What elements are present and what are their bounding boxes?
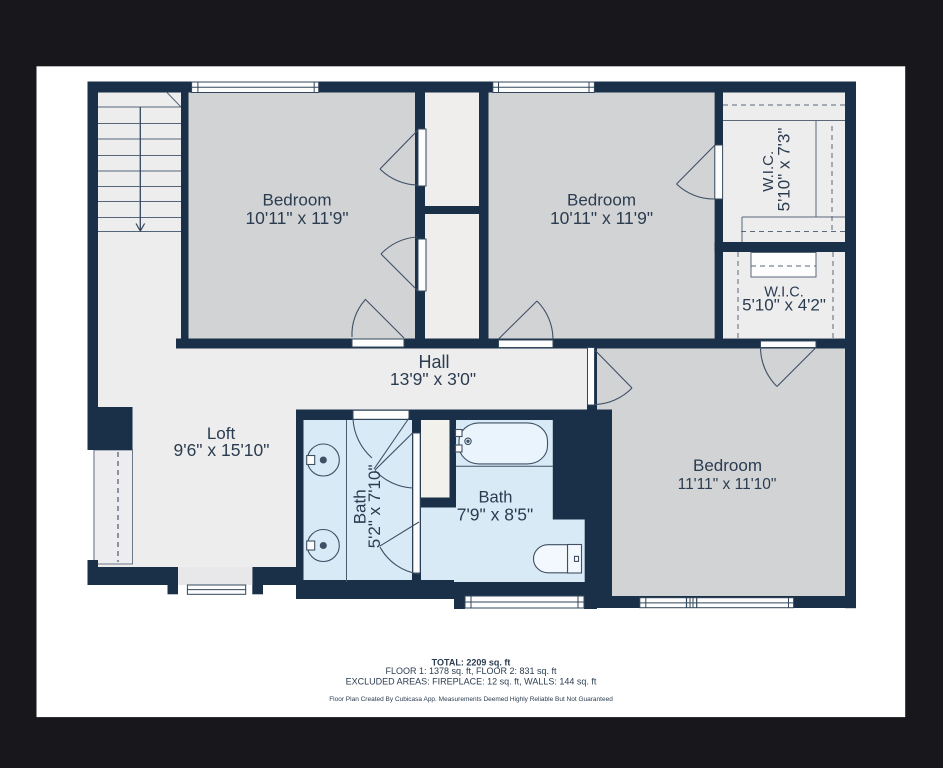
svg-text:10'11" x 11'9": 10'11" x 11'9" [550,208,653,228]
svg-text:EXCLUDED AREAS: FIREPLACE: 12: EXCLUDED AREAS: FIREPLACE: 12 sq. ft, WA… [346,676,597,686]
svg-text:10'11" x 11'9": 10'11" x 11'9" [245,208,348,228]
svg-text:Floor Plan Created By Cubicasa: Floor Plan Created By Cubicasa App. Meas… [329,696,613,703]
svg-text:13'9" x 3'0": 13'9" x 3'0" [390,369,476,389]
svg-text:Bedroom: Bedroom [263,191,332,210]
svg-text:11'11" x 11'10": 11'11" x 11'10" [678,476,777,493]
svg-text:5'10" x 4'2": 5'10" x 4'2" [742,296,826,315]
svg-text:5'2" x 7'10": 5'2" x 7'10" [365,465,384,549]
svg-text:Bedroom: Bedroom [567,191,636,210]
svg-text:FLOOR 1: 1378 sq. ft, FLOOR 2:: FLOOR 1: 1378 sq. ft, FLOOR 2: 831 sq. f… [385,666,557,676]
svg-text:Bedroom: Bedroom [693,456,762,475]
svg-text:7'9" x 8'5": 7'9" x 8'5" [457,505,534,525]
svg-text:5'10" x 7'3": 5'10" x 7'3" [775,128,794,212]
svg-text:9'6" x 15'10": 9'6" x 15'10" [174,440,270,460]
